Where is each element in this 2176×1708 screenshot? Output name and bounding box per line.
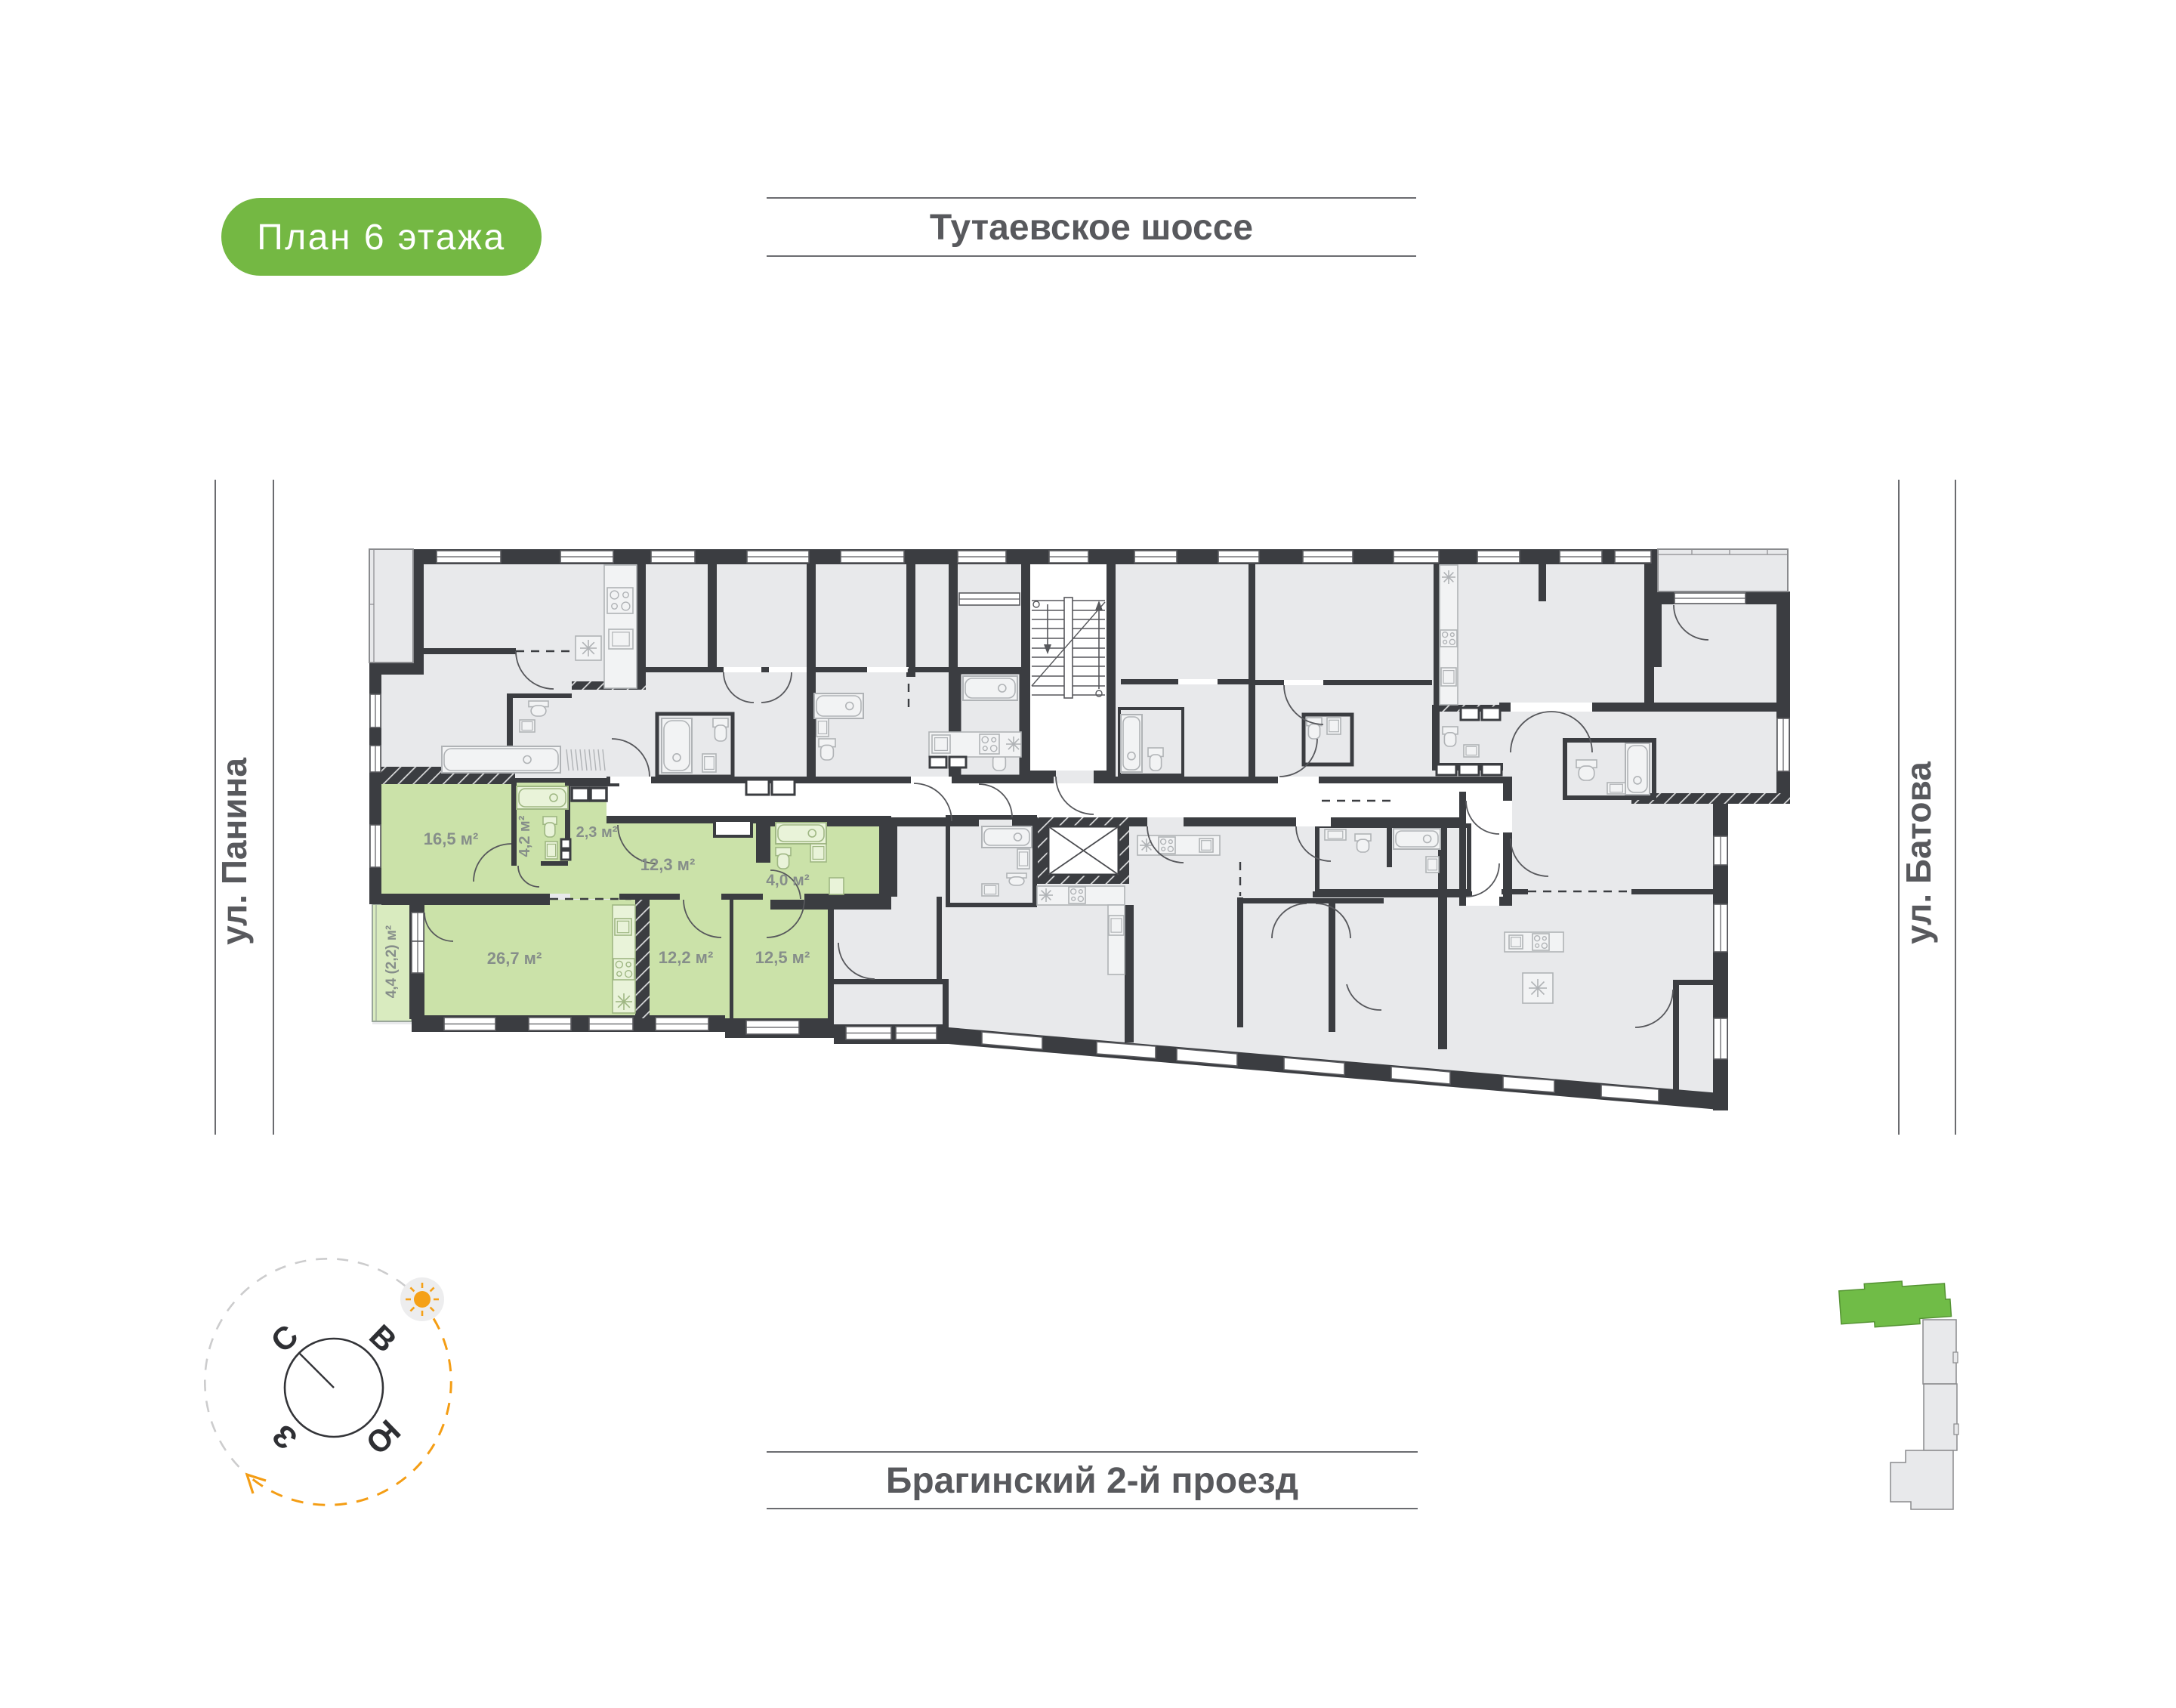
svg-text:4,0 м²: 4,0 м² xyxy=(766,872,810,889)
svg-text:ул. Панина: ул. Панина xyxy=(215,758,254,945)
svg-text:Брагинский 2-й проезд: Брагинский 2-й проезд xyxy=(886,1461,1298,1501)
svg-text:12,2 м²: 12,2 м² xyxy=(659,948,714,967)
svg-text:4,4 (2,2) м²: 4,4 (2,2) м² xyxy=(384,925,400,998)
svg-text:ул. Батова: ул. Батова xyxy=(1899,761,1938,944)
svg-text:16,5 м²: 16,5 м² xyxy=(424,829,479,848)
svg-text:26,7 м²: 26,7 м² xyxy=(487,949,542,968)
svg-text:Тутаевское шоссе: Тутаевское шоссе xyxy=(930,208,1253,248)
svg-text:План 6 этажа: План 6 этажа xyxy=(257,218,505,258)
svg-text:2,3 м²: 2,3 м² xyxy=(576,824,618,841)
svg-text:4,2 м²: 4,2 м² xyxy=(517,815,533,857)
svg-text:12,3 м²: 12,3 м² xyxy=(640,855,696,874)
svg-text:12,5 м²: 12,5 м² xyxy=(755,948,810,967)
